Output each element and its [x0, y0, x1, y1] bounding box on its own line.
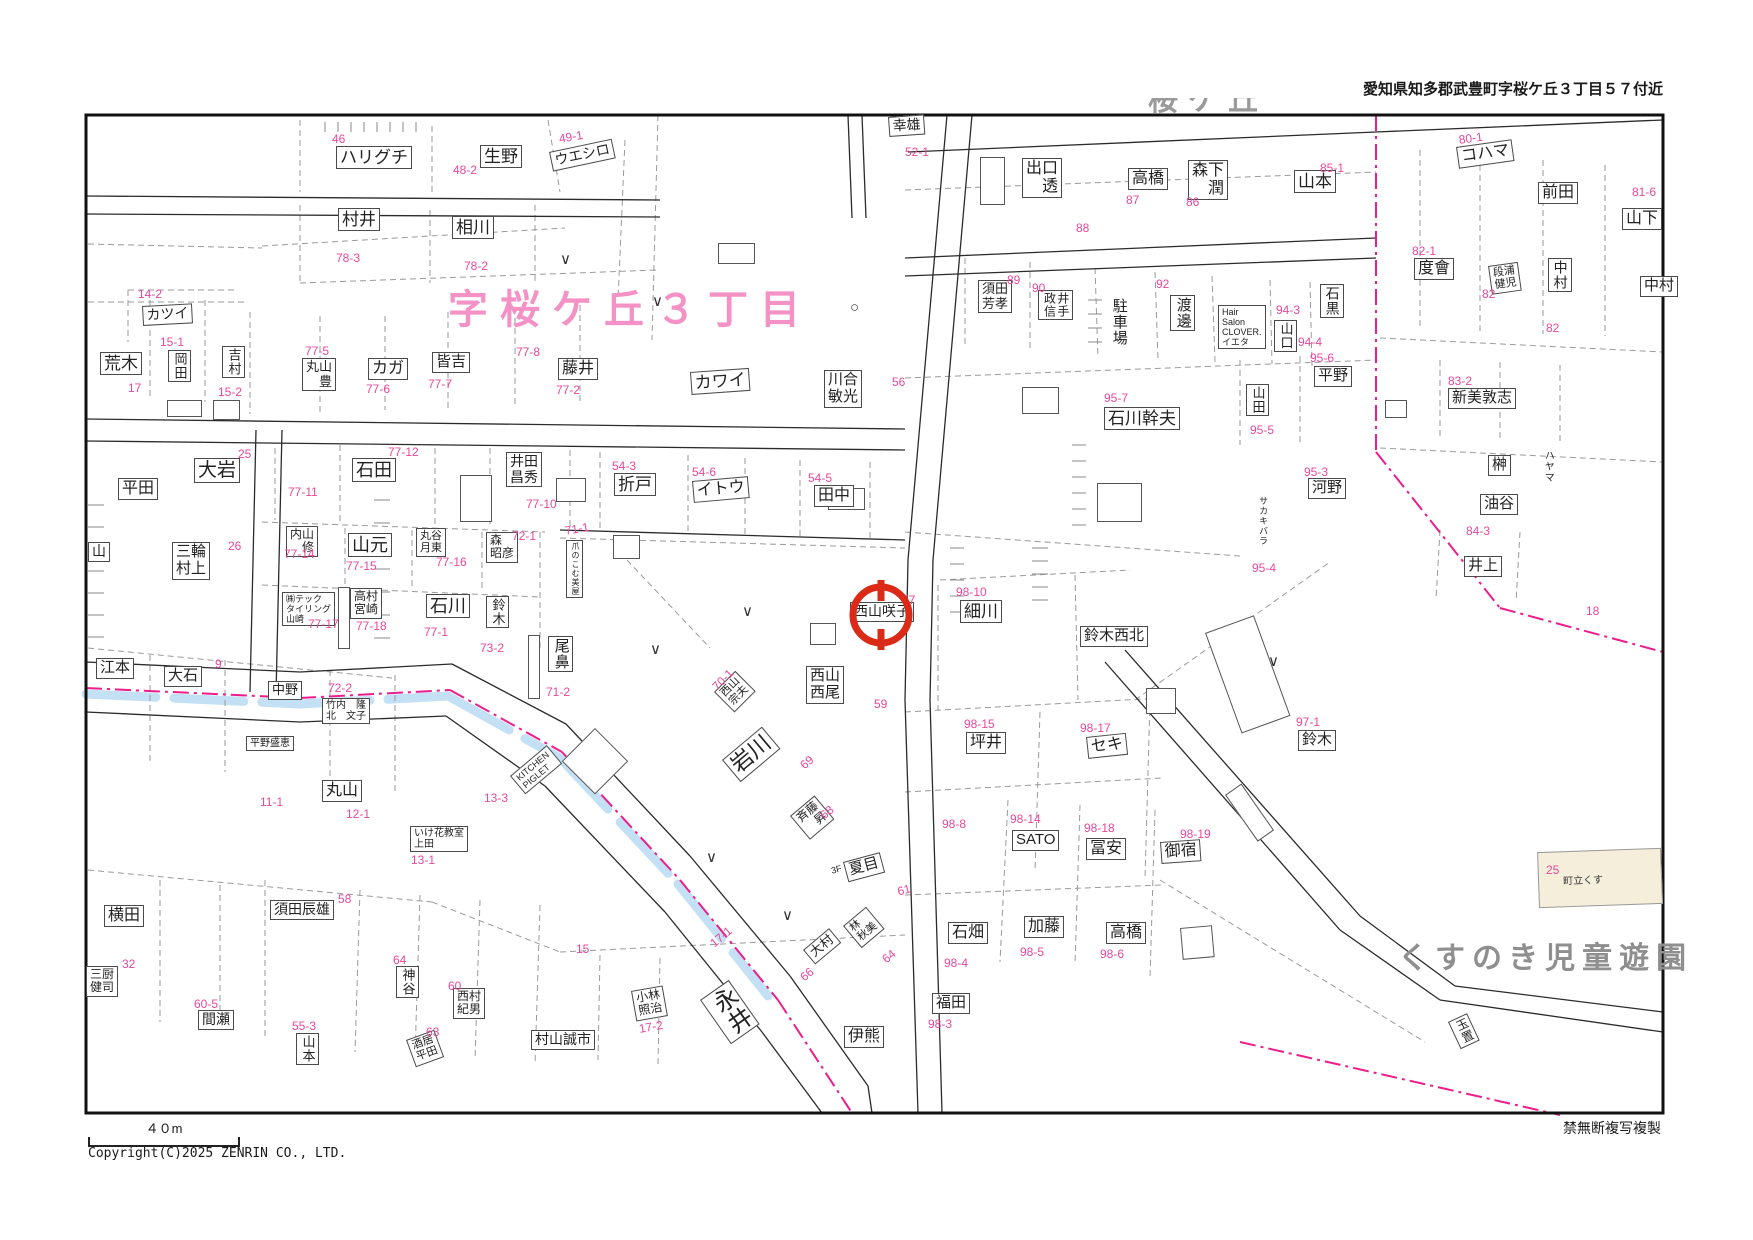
map-label: 横田 [104, 905, 144, 927]
building-outline [980, 157, 1005, 205]
map-label: カワイ [690, 368, 750, 395]
lot-number: 77-1 [424, 626, 448, 639]
map-label: 石川 [426, 594, 470, 618]
map-label: 油谷 [1480, 494, 1518, 515]
map-label: 吉村 [222, 346, 245, 378]
lot-number: 63 [426, 1026, 439, 1039]
map-label: 渡邊 [1170, 295, 1195, 331]
lot-number: 52-1 [905, 146, 929, 159]
lot-number: 98-4 [944, 957, 968, 970]
check-symbol: ∨ [782, 906, 793, 924]
lot-number: 11-1 [260, 796, 283, 809]
building-outline [460, 475, 492, 522]
lot-number: 71-1 [564, 521, 590, 538]
lot-number: 77-15 [346, 560, 377, 573]
map-label: 石川幹夫 [1104, 407, 1180, 430]
lot-number: 77-7 [428, 378, 452, 391]
lot-number: 98-10 [956, 586, 987, 599]
map-label: 林 秋美 [843, 907, 884, 948]
building-outline [1385, 400, 1407, 418]
map-label: 小林 照治 [631, 985, 668, 1021]
lot-number: 95-5 [1250, 424, 1274, 437]
lot-number: 15-2 [218, 386, 242, 399]
map-label: 鈴木 [1298, 730, 1336, 751]
lot-number: 85-1 [1320, 162, 1344, 175]
lot-number: 64 [880, 947, 899, 966]
map-label: 幸雄 [888, 114, 925, 136]
lot-number: 98-17 [1080, 722, 1111, 735]
lot-number: 86 [1186, 196, 1199, 209]
map-label: 村山誠市 [531, 1030, 595, 1050]
lot-number: 12-1 [346, 808, 370, 821]
map-label: 山元 [348, 533, 392, 557]
lot-number: 94-4 [1298, 336, 1322, 349]
lot-number: 54-6 [692, 466, 716, 479]
map-label: 中村 [1640, 276, 1678, 297]
map-label: 西山 西尾 [806, 666, 844, 704]
map-label: 3F [830, 863, 843, 875]
building-outline [718, 243, 755, 264]
lot-number: 98-19 [1180, 828, 1211, 841]
map-label: 冨安 [1086, 838, 1126, 860]
map-label: 生野 [480, 145, 522, 168]
utility-symbol: ○ [850, 299, 859, 316]
map-label: 岩川 [722, 727, 780, 782]
map-label: 高橋 [1106, 922, 1146, 944]
map-label: 平野盛恵 [246, 736, 294, 751]
lot-number: 48-2 [453, 164, 477, 177]
map-label: 井上 [1464, 556, 1502, 577]
map-label: 大岩 [194, 458, 240, 483]
lot-number: 84-3 [1466, 525, 1490, 538]
lot-number: 92 [1156, 278, 1169, 291]
lot-number: 77-17 [308, 618, 339, 631]
lot-number: 82 [1546, 322, 1559, 335]
map-label: 藤井 [558, 358, 598, 380]
lot-number: 72-1 [512, 530, 536, 543]
check-symbol: ∨ [650, 640, 661, 658]
map-label: 字桜ケ丘３丁目 [448, 288, 812, 333]
map-label: 夏目 [843, 852, 885, 882]
lot-number: 54-5 [808, 472, 832, 485]
map-page: 46ハリグチ48-2生野49-1ウエシロ幸雄52-1桜ケ丘出口 透88高橋87森… [0, 0, 1753, 1240]
map-label: 高村 宮崎 [350, 588, 382, 619]
lot-number: 17-2 [638, 1019, 664, 1036]
lot-number: 95-3 [1304, 466, 1328, 479]
lot-number: 98-3 [928, 1018, 952, 1031]
lot-number: 13-3 [484, 792, 508, 805]
lot-number: 71-2 [546, 686, 570, 699]
lot-number: 77-8 [516, 346, 540, 359]
building-outline [1022, 387, 1059, 414]
lot-number: 15-1 [160, 336, 184, 349]
map-label: 出口 透 [1022, 158, 1062, 198]
map-label: 中村 [1548, 258, 1572, 292]
map-label: ハヤマ [1542, 450, 1553, 483]
lot-number: 77-6 [366, 383, 390, 396]
lot-number: 77-16 [436, 556, 467, 569]
map-label: 山田 [1246, 384, 1269, 416]
lot-number: 59 [874, 698, 887, 711]
lot-number: 32 [122, 958, 135, 971]
building-outline [613, 535, 640, 559]
lot-number: 14-2 [138, 288, 162, 301]
lot-number: 25 [1546, 864, 1559, 877]
map-label: 山本 [296, 1033, 319, 1065]
lot-number: 95-7 [1104, 392, 1128, 405]
map-label: 爪のこむ美屋 [566, 540, 583, 598]
map-label: セキ [1086, 733, 1128, 759]
lot-number: 77-14 [284, 548, 315, 561]
lot-number: 78-2 [464, 260, 488, 273]
building-outline [556, 478, 586, 502]
map-label: KITCHEN PIGLET [510, 745, 562, 794]
lot-number: 15 [576, 943, 589, 956]
copyright-text: Copyright(C)2025 ZENRIN CO., LTD. [88, 1146, 346, 1161]
lot-number: 13-1 [411, 854, 435, 867]
check-symbol: ∨ [742, 602, 753, 620]
map-label: 河野 [1308, 478, 1346, 499]
map-label: 須田辰雄 [270, 900, 334, 920]
public-building-label: 町立くす [1563, 871, 1603, 887]
lot-number: 98-6 [1100, 948, 1124, 961]
map-label: 中野 [268, 681, 302, 700]
lot-number: 95-6 [1310, 352, 1334, 365]
lot-number: 66 [798, 965, 817, 984]
lot-number: 73-2 [480, 642, 504, 655]
building-outline [1097, 483, 1142, 522]
building-outline [810, 623, 836, 645]
map-label: 三輪 村上 [172, 542, 210, 580]
check-symbol: ∨ [652, 292, 663, 310]
lot-number: 95-4 [1252, 562, 1276, 575]
lot-number: 77-5 [305, 345, 329, 358]
map-label: 川合 敏光 [824, 370, 862, 408]
lot-number: 88 [1076, 222, 1089, 235]
lot-number: 94-3 [1276, 304, 1300, 317]
map-label: カツイ [142, 303, 193, 325]
building-outline [528, 635, 540, 699]
building-outline [1146, 688, 1176, 714]
map-label: 山口 [1274, 320, 1297, 352]
map-label: サカキバラ [1258, 496, 1268, 546]
map-label: 駐車場 [1110, 298, 1127, 346]
lot-number: 77-12 [388, 446, 419, 459]
map-label: 大石 [164, 666, 202, 687]
lot-number: 72-2 [328, 682, 352, 695]
lot-number: 55-3 [292, 1020, 316, 1033]
lot-number: 77-2 [556, 384, 580, 397]
lot-number: 60 [448, 980, 461, 993]
map-label: 相川 [452, 216, 494, 239]
map-label: 丸谷 月東 [416, 528, 446, 557]
map-label: 伊熊 [844, 1026, 884, 1048]
lot-number: 87 [1126, 194, 1139, 207]
map-label: 度會 [1414, 258, 1454, 280]
map-label: 竹内 隆 北 文子 [322, 698, 370, 724]
lot-number: 89 [1007, 274, 1020, 287]
check-symbol: ∨ [560, 250, 571, 268]
map-label: 山 [88, 542, 110, 562]
map-label: 福田 [932, 993, 970, 1014]
target-location-marker [841, 575, 921, 660]
map-label: 田中 [814, 485, 854, 507]
map-label: 御宿 [1160, 839, 1201, 864]
lot-number: 64 [393, 954, 406, 967]
map-label: 榊 [1488, 455, 1511, 476]
check-symbol: ∨ [706, 848, 717, 866]
map-label: 江本 [96, 658, 134, 679]
map-label: 山下 [1622, 208, 1662, 230]
map-label: 玉置 [1448, 1013, 1480, 1049]
map-label: 桜ケ丘 [1148, 98, 1268, 118]
building-outline [167, 400, 202, 417]
map-label: 間瀬 [198, 1010, 234, 1030]
map-label: 細川 [960, 600, 1002, 623]
lot-number: 98-8 [942, 818, 966, 831]
map-label: いけ花教室 上田 [410, 826, 468, 852]
lot-number: 17 [128, 382, 141, 395]
map-label: 大村 [803, 928, 841, 964]
lot-number: 81-6 [1632, 186, 1656, 199]
lot-number: 61 [896, 883, 912, 899]
map-label: 三厨 健司 [86, 966, 118, 997]
lot-number: 17-1 [708, 925, 735, 951]
map-label: 丸山 [322, 780, 362, 802]
lot-number: 77-10 [526, 498, 557, 511]
map-label: 石黒 [1320, 284, 1344, 318]
map-label: 平田 [118, 478, 158, 500]
lot-number: 98-18 [1084, 822, 1115, 835]
scale-label: ４０m [88, 1118, 240, 1137]
lot-number: 54-3 [612, 460, 636, 473]
lot-number: 69 [798, 753, 817, 772]
map-label: カガ [368, 358, 408, 380]
map-label: 加藤 [1024, 916, 1064, 938]
lot-number: 60-5 [194, 998, 218, 1011]
lot-number: 9 [215, 658, 222, 671]
lot-number: 77-18 [356, 620, 387, 633]
map-label: 石田 [352, 458, 396, 482]
map-label: 皆吉 [432, 352, 470, 373]
map-label: SATO [1012, 830, 1059, 851]
map-label: 永井 [700, 980, 760, 1044]
lot-number: 49-1 [558, 129, 584, 146]
map-label: 坪井 [966, 732, 1006, 754]
no-copy-notice: 禁無断複写複製 [1563, 1118, 1661, 1138]
lot-number: 25 [238, 448, 251, 461]
lot-number: 78-3 [336, 252, 360, 265]
lot-number: 90 [1032, 282, 1045, 295]
lot-number: 98-5 [1020, 946, 1044, 959]
map-label: 尾鼻 [548, 636, 573, 672]
map-label: 高橋 [1128, 168, 1168, 190]
lot-number: 82-1 [1412, 245, 1436, 258]
lot-number: 56 [892, 376, 905, 389]
building-outline [1180, 925, 1215, 960]
lot-number: 46 [332, 133, 345, 146]
map-label: 丸山 豊 [302, 358, 336, 391]
lot-number: 77-11 [288, 486, 318, 499]
map-label: Hair Salon CLOVER. イエタ [1218, 305, 1266, 349]
check-symbol: ∨ [1268, 652, 1279, 670]
map-label: 村井 [338, 208, 380, 231]
map-label: 新美敦志 [1448, 388, 1516, 409]
map-label: 鈴木西北 [1080, 626, 1148, 647]
building-outline [338, 587, 350, 649]
map-label: 岡田 [168, 350, 191, 382]
map-label: 荒木 [100, 352, 142, 375]
lot-number: 18 [1586, 605, 1599, 618]
map-label: 井田 昌秀 [506, 452, 542, 487]
map-sheet-title: 愛知県知多郡武豊町字桜ケ丘３丁目５７付近 [1363, 78, 1663, 99]
map-label: 平野 [1314, 366, 1352, 387]
map-label: 森下 潤 [1188, 160, 1228, 200]
public-building: 町立くす [1537, 848, 1663, 908]
map-label: 神谷 [396, 966, 419, 998]
lot-number: 98-15 [964, 718, 995, 731]
lot-number: 58 [338, 893, 351, 906]
map-label: 鈴木 [486, 596, 509, 628]
map-label: イトウ [692, 476, 750, 503]
lot-number: 82 [1482, 288, 1495, 301]
map-label: 折戸 [614, 473, 656, 496]
map-label: ハリグチ [336, 146, 412, 169]
map-label: 前田 [1538, 182, 1578, 204]
sc ale-bar: ４０m [88, 1118, 240, 1147]
lot-number: 97-1 [1296, 716, 1320, 729]
lot-number: 83-2 [1448, 375, 1472, 388]
lot-number: 98-14 [1010, 813, 1041, 826]
building-outline [213, 400, 240, 420]
map-label: 石畑 [948, 922, 988, 944]
lot-number: 26 [228, 540, 241, 553]
map-label: くすのき児童遊園 [1398, 942, 1693, 976]
